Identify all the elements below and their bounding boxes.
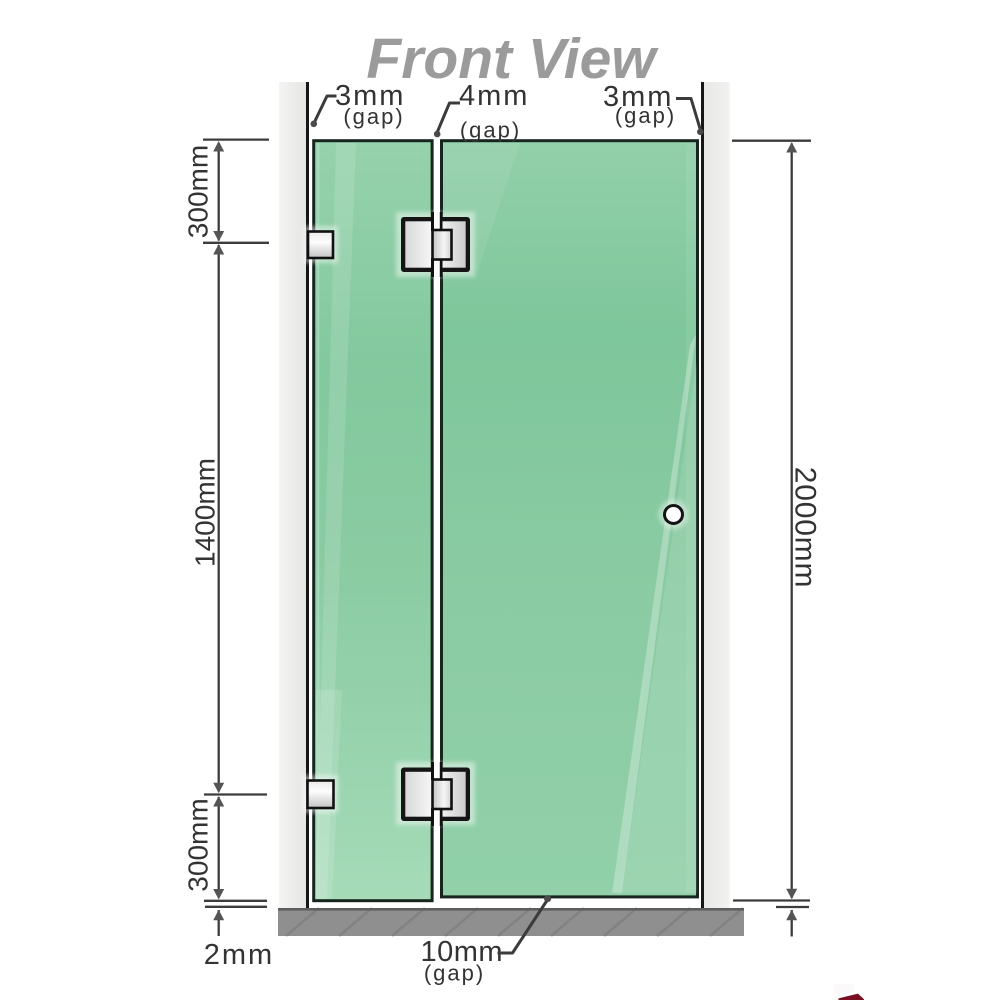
svg-text:(gap): (gap)	[460, 118, 521, 143]
svg-text:(gap): (gap)	[343, 104, 404, 129]
svg-text:300mm: 300mm	[183, 145, 214, 238]
svg-text:(gap): (gap)	[424, 961, 485, 986]
svg-text:2000mm: 2000mm	[789, 467, 822, 589]
svg-text:2mm: 2mm	[204, 939, 274, 971]
svg-text:300mm: 300mm	[183, 798, 214, 891]
svg-text:(gap): (gap)	[615, 103, 676, 128]
svg-text:1400mm: 1400mm	[190, 458, 221, 567]
svg-text:4mm: 4mm	[459, 80, 529, 112]
